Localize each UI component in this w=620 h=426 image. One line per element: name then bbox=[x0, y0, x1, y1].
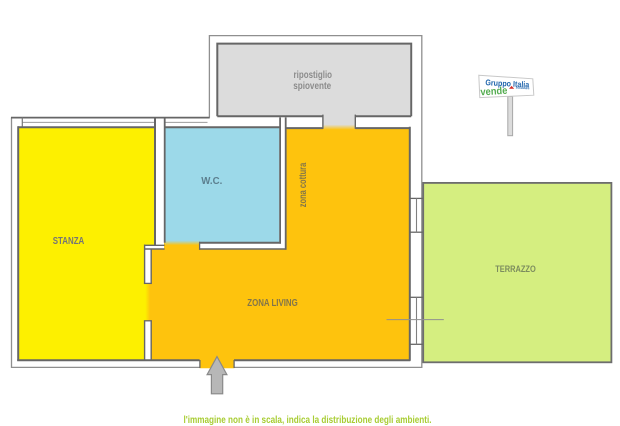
svg-text:immobiliare: immobiliare bbox=[516, 86, 530, 91]
svg-text:TERRAZZO: TERRAZZO bbox=[495, 264, 536, 275]
svg-text:ZONA LIVING: ZONA LIVING bbox=[247, 298, 298, 309]
svg-text:STANZA: STANZA bbox=[53, 236, 85, 247]
svg-text:vende: vende bbox=[480, 86, 508, 99]
svg-text:zona cottura: zona cottura bbox=[297, 163, 309, 208]
svg-text:W.C.: W.C. bbox=[201, 176, 222, 187]
svg-text:spiovente: spiovente bbox=[293, 80, 331, 92]
svg-text:l'immagine non è in scala, ind: l'immagine non è in scala, indica la dis… bbox=[184, 415, 432, 426]
